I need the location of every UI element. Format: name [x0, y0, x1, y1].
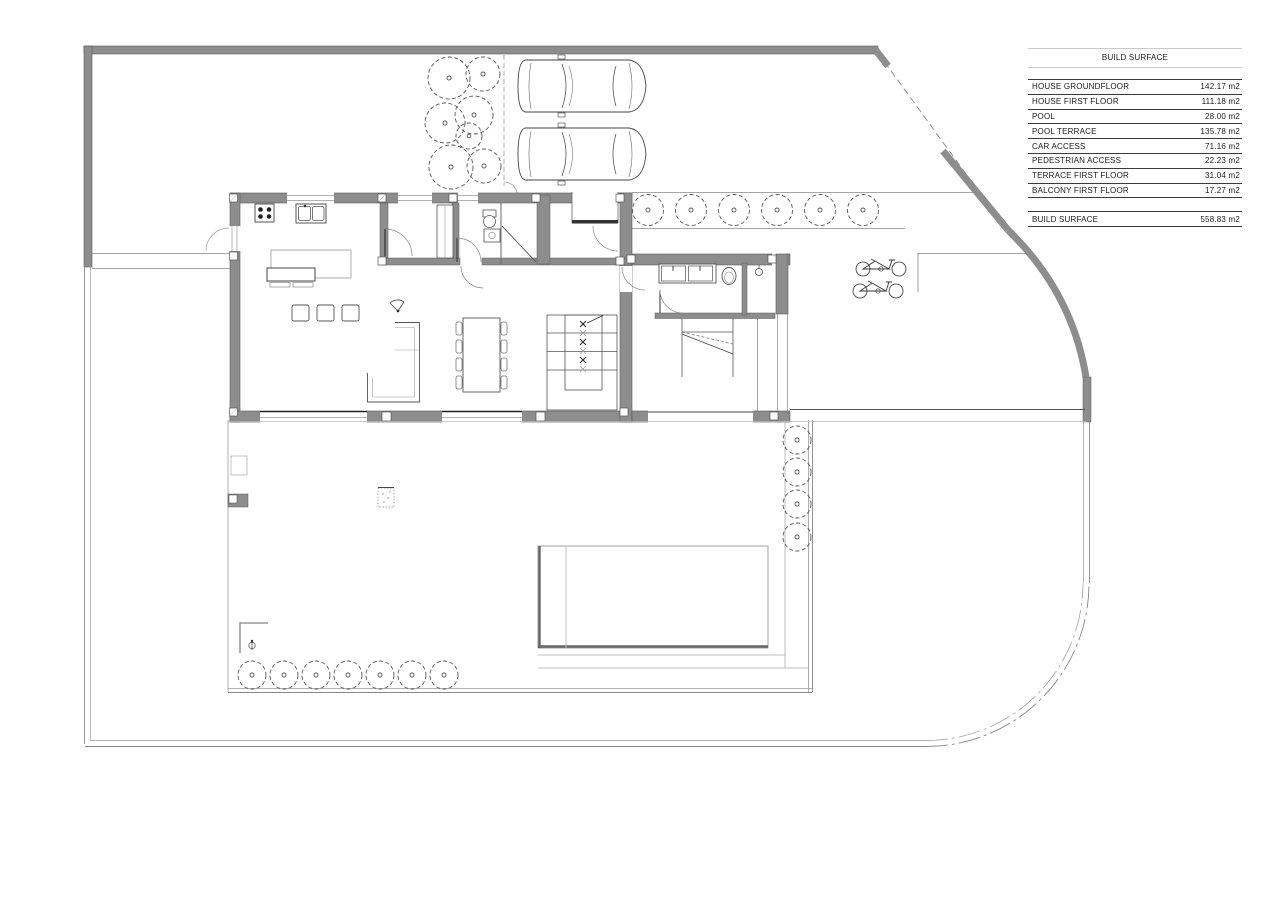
car-icon — [518, 55, 646, 117]
column-markers — [230, 194, 629, 421]
table-title: BUILD SURFACE — [1028, 48, 1242, 68]
outdoor-shower — [378, 488, 394, 508]
wc-room — [457, 210, 500, 262]
vanity-sinks — [659, 264, 716, 283]
pool — [538, 546, 768, 648]
table-row: PEDESTRIAN ACCESS 22.23 m2 — [1028, 154, 1242, 169]
kitchen-sink-icon — [296, 204, 326, 223]
bicycle-icon — [853, 281, 903, 298]
shower-icon — [756, 265, 763, 276]
living-area — [368, 300, 508, 402]
terrace-pier — [228, 494, 248, 507]
build-surface-table: BUILD SURFACE HOUSE GROUNDFLOOR 142.17 m… — [1028, 48, 1242, 227]
staircase-main — [547, 315, 617, 410]
pantry-room — [437, 205, 453, 258]
lamp-icon — [249, 640, 255, 650]
floor-plan-page: BUILD SURFACE HOUSE GROUNDFLOOR 142.17 m… — [0, 0, 1280, 905]
table-row: HOUSE GROUNDFLOOR 142.17 m2 — [1028, 80, 1242, 95]
tree-row-north — [633, 195, 879, 226]
table-total-row: BUILD SURFACE 558.83 m2 — [1028, 211, 1242, 227]
main-entrance — [572, 192, 618, 251]
stove-icon — [255, 204, 274, 222]
fan-icon — [390, 300, 404, 312]
garden-wall — [240, 623, 268, 653]
bar-stool — [292, 305, 359, 321]
car-icon — [518, 123, 646, 185]
pool-terrace — [228, 410, 1087, 693]
house-walls — [206, 192, 645, 423]
toilet-icon — [483, 210, 496, 228]
bicycle-icon — [856, 259, 906, 276]
toilet-icon — [722, 268, 736, 285]
understair-storage — [502, 226, 536, 262]
table-row: POOL 28.00 m2 — [1028, 110, 1242, 125]
table-row: POOL TERRACE 135.78 m2 — [1028, 124, 1242, 139]
tree-row-south — [238, 661, 458, 689]
washbasin-icon — [484, 229, 500, 242]
planter — [231, 456, 247, 475]
sofa — [368, 323, 420, 403]
table-row: HOUSE FIRST FLOOR 111.18 m2 — [1028, 95, 1242, 110]
table-row: CAR ACCESS 71.16 m2 — [1028, 139, 1242, 154]
table-row: TERRACE FIRST FLOOR 31.04 m2 — [1028, 169, 1242, 184]
kitchen-island — [267, 250, 351, 287]
table-row: BALCONY FIRST FLOOR 17.27 m2 — [1028, 184, 1242, 199]
pedestrian-walkway-west — [92, 254, 230, 269]
car-access-area — [504, 55, 646, 193]
staircase-annex — [682, 319, 758, 412]
tree-column-east — [783, 426, 811, 551]
kitchen — [255, 204, 359, 321]
annex — [627, 254, 790, 423]
dining-table — [456, 318, 507, 392]
tree-cluster — [425, 57, 501, 189]
